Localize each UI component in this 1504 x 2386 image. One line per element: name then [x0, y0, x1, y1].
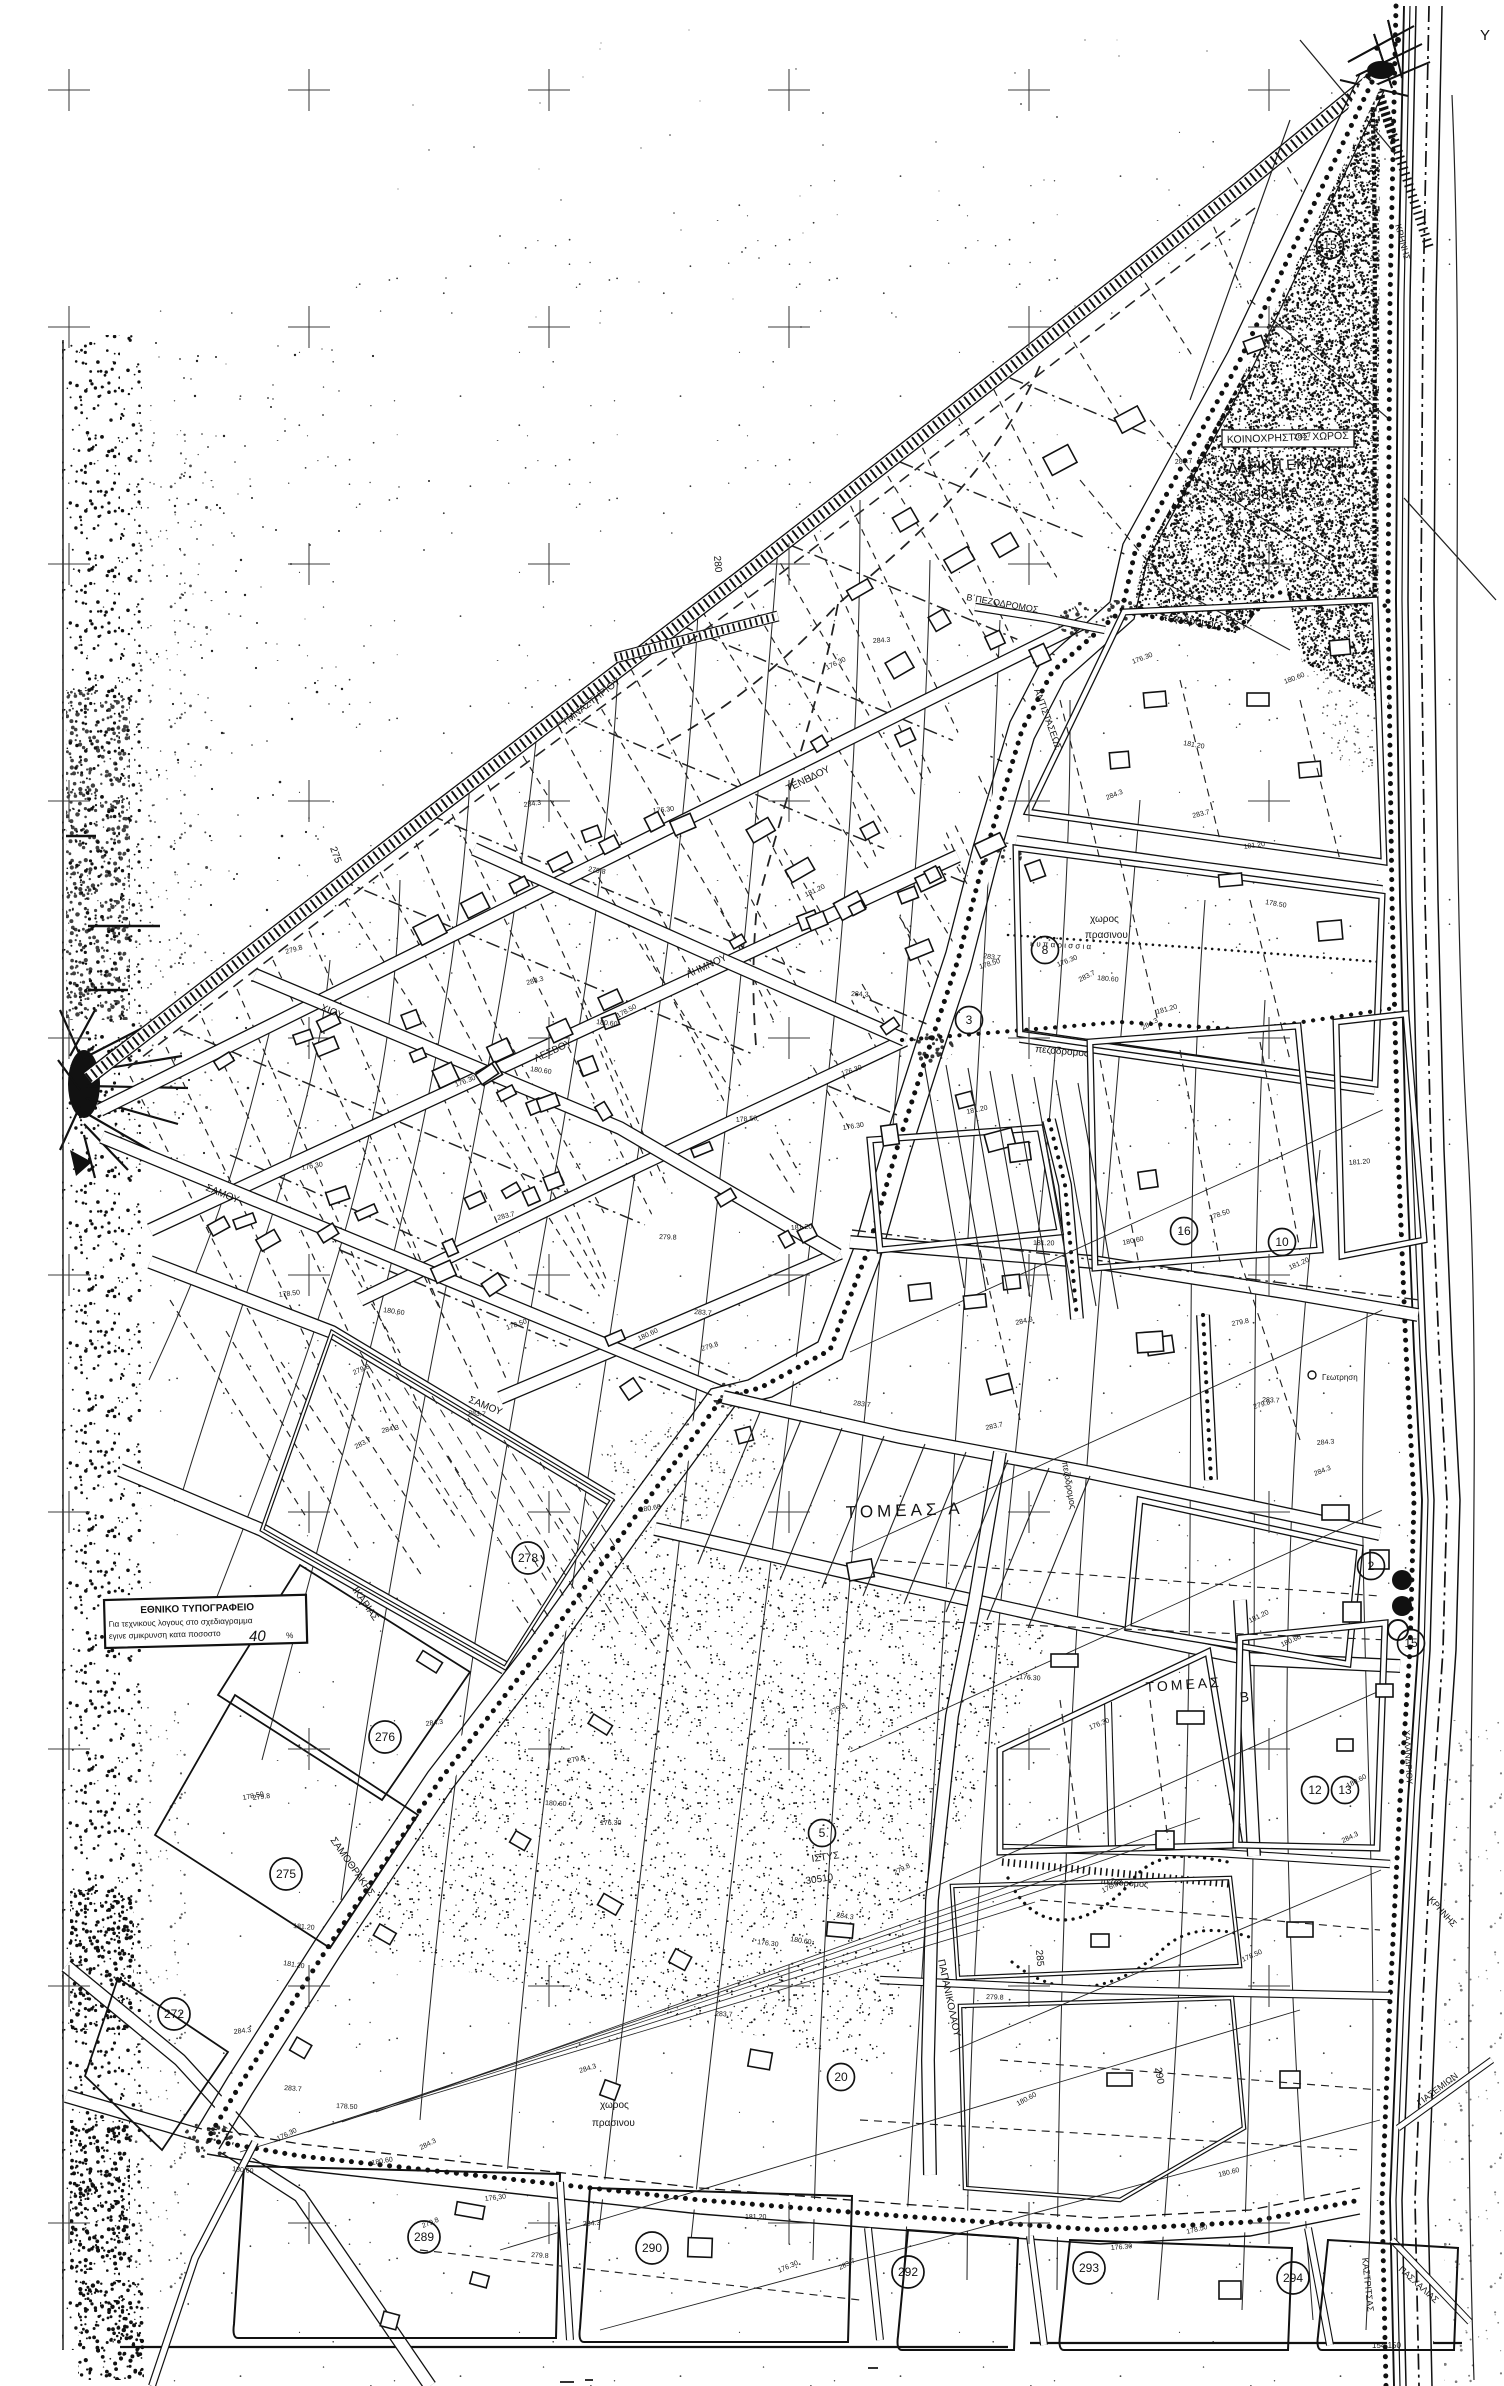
svg-text:279.8: 279.8	[986, 1994, 1004, 2002]
svg-text:12: 12	[1308, 1783, 1322, 1797]
svg-text:284.3: 284.3	[1200, 458, 1218, 465]
svg-text:Γεωτρηση: Γεωτρηση	[1322, 1373, 1358, 1382]
svg-text:289: 289	[414, 2230, 434, 2244]
svg-text:16: 16	[1177, 1224, 1191, 1238]
svg-text:χωρος: χωρος	[600, 2100, 629, 2111]
svg-text:10: 10	[1275, 1235, 1289, 1249]
svg-text:292: 292	[898, 2265, 918, 2279]
svg-text:294: 294	[1283, 2271, 1303, 2285]
svg-text:275: 275	[276, 1867, 296, 1881]
svg-text:181.20: 181.20	[745, 2214, 767, 2221]
svg-text:3: 3	[966, 1013, 973, 1027]
svg-text:180.60: 180.60	[545, 1800, 567, 1808]
svg-text:280: 280	[711, 555, 723, 573]
svg-text:293: 293	[1079, 2261, 1099, 2275]
svg-text:154 150: 154 150	[1372, 2341, 1401, 2350]
svg-text:Β: Β	[1239, 1688, 1249, 1705]
svg-text:283.7: 283.7	[694, 1309, 712, 1317]
svg-text:181.20: 181.20	[791, 1224, 813, 1232]
svg-text:283.7: 283.7	[1175, 458, 1193, 466]
svg-text:279.8: 279.8	[659, 1234, 677, 1242]
svg-text:8: 8	[1042, 943, 1049, 957]
svg-text:πρασινου: πρασινου	[592, 2118, 635, 2129]
svg-text:20: 20	[834, 2070, 848, 2084]
svg-text:178.50: 178.50	[336, 2103, 358, 2111]
svg-text:χωρος: χωρος	[1090, 914, 1119, 925]
svg-text:284.3: 284.3	[583, 2220, 601, 2228]
svg-text:15: 15	[1323, 238, 1337, 252]
svg-text:181.20: 181.20	[1033, 1240, 1055, 1247]
svg-text:15: 15	[1404, 1636, 1418, 1650]
svg-text:276: 276	[375, 1730, 395, 1744]
svg-text:πρασινου: πρασινου	[1085, 930, 1128, 941]
svg-text:278: 278	[518, 1551, 538, 1565]
svg-text:290: 290	[642, 2241, 662, 2255]
svg-text:Y: Y	[1480, 27, 1490, 44]
svg-text:176.30: 176.30	[600, 1820, 622, 1827]
svg-text:285: 285	[1033, 1949, 1045, 1967]
svg-text:283.7: 283.7	[284, 2085, 302, 2093]
svg-text:283.7: 283.7	[715, 2011, 733, 2019]
svg-text:%: %	[286, 1631, 294, 1640]
svg-text:284.3: 284.3	[873, 637, 891, 645]
svg-text:272: 272	[164, 2007, 184, 2021]
svg-text:279.8: 279.8	[531, 2252, 549, 2260]
svg-text:40: 40	[249, 1628, 267, 1645]
svg-text:2: 2	[1368, 1559, 1375, 1573]
svg-text:176.30: 176.30	[1019, 1674, 1041, 1682]
svg-text:284.3: 284.3	[851, 991, 869, 999]
svg-text:5: 5	[819, 1826, 826, 1840]
